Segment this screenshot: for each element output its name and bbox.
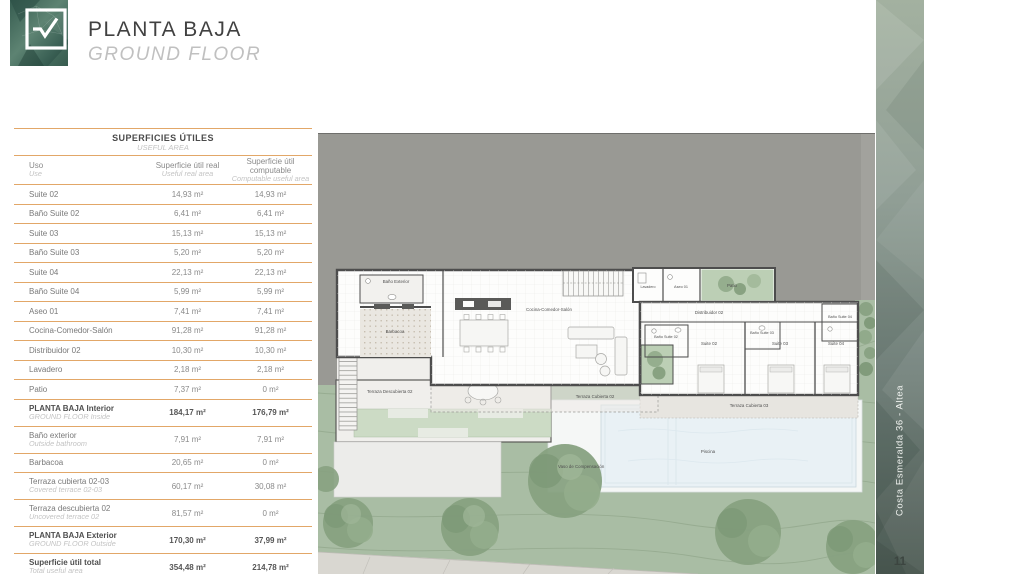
label-terraza-cubierta-02: Terraza Cubierta 02 — [576, 394, 615, 399]
label-suite-02: Suite 02 — [701, 341, 718, 346]
table-row-total: Superficie útil totalTotal useful area35… — [14, 554, 312, 574]
label-piscina: Piscina — [701, 449, 716, 454]
table-row: Cocina-Comedor-Salón91,28 m²91,28 m² — [14, 322, 312, 342]
table-row: Baño Suite 045,99 m²5,99 m² — [14, 283, 312, 303]
table-row-subtotal-exterior: PLANTA BAJA ExteriorGROUND FLOOR Outside… — [14, 527, 312, 554]
table-row: Aseo 017,41 m²7,41 m² — [14, 302, 312, 322]
label-terraza-cubierta-03: Terraza Cubierta 03 — [730, 403, 769, 408]
floor-plan: Baño Exterior Barbacoa Cocina-Comedor-Sa… — [318, 131, 875, 574]
table-row: Baño Suite 026,41 m²6,41 m² — [14, 205, 312, 225]
table-row: Lavadero2,18 m²2,18 m² — [14, 361, 312, 381]
page-number: 11 — [876, 556, 924, 568]
brand-logo-icon — [10, 0, 68, 66]
table-title-en: USEFUL AREA — [14, 143, 312, 152]
label-cocina: Cocina-Comedor-Salón — [526, 307, 572, 312]
table-title-block: SUPERFICIES ÚTILES USEFUL AREA — [14, 129, 312, 156]
table-row: Distribuidor 0210,30 m²10,30 m² — [14, 341, 312, 361]
label-bano-suite-03: Baño Suite 03 — [750, 331, 774, 335]
page-subtitle: GROUND FLOOR — [88, 44, 261, 66]
table-row: Terraza cubierta 02-03Covered terrace 02… — [14, 473, 312, 500]
label-distribuidor: Distribuidor 02 — [695, 310, 724, 315]
label-vaso: Vaso de Compensación — [558, 464, 605, 469]
label-bano-suite-04: Baño Suite 04 — [828, 315, 852, 319]
brand-logo — [10, 0, 68, 66]
table-row: Patio7,37 m²0 m² — [14, 380, 312, 400]
table-row: Baño Suite 035,20 m²5,20 m² — [14, 244, 312, 264]
col-computable: Superficie útil computable — [229, 157, 312, 175]
table-row: Suite 0422,13 m²22,13 m² — [14, 263, 312, 283]
house-bedroom-wing — [640, 302, 858, 395]
label-suite-03: Suite 03 — [772, 341, 789, 346]
label-aseo: Aseo 01 — [674, 285, 688, 289]
table-row: Terraza descubierta 02Uncovered terrace … — [14, 500, 312, 527]
table-title: SUPERFICIES ÚTILES — [14, 133, 312, 143]
table-header-row: UsoUse Superficie útil realUseful real a… — [14, 156, 312, 185]
table-row: Suite 0214,93 m²14,93 m² — [14, 185, 312, 205]
project-name-vertical: Costa Esmeralda 36 - Altea — [895, 385, 906, 516]
page-title: PLANTA BAJA — [88, 18, 242, 42]
label-lavadero: Lavadero — [641, 285, 656, 289]
table-row: Baño exteriorOutside bathroom7,91 m²7,91… — [14, 427, 312, 454]
table-row-subtotal-interior: PLANTA BAJA InteriorGROUND FLOOR Inside1… — [14, 400, 312, 427]
label-bano-suite-02: Baño Suite 02 — [654, 335, 678, 339]
areas-table: SUPERFICIES ÚTILES USEFUL AREA UsoUse Su… — [14, 128, 312, 574]
label-bano-exterior: Baño Exterior — [383, 279, 410, 284]
col-uso: Uso — [29, 161, 146, 170]
table-row: Suite 0315,13 m²15,13 m² — [14, 224, 312, 244]
label-patio: Patio — [727, 283, 738, 288]
table-row: Barbacoa20,65 m²0 m² — [14, 454, 312, 474]
brochure-page: PLANTA BAJA GROUND FLOOR SUPERFICIES ÚTI… — [0, 0, 1024, 574]
label-terraza-descubierta: Terraza Descubierta 02 — [367, 389, 413, 394]
label-suite-04: Suite 04 — [828, 341, 845, 346]
label-barbacoa: Barbacoa — [386, 329, 405, 334]
brand-sidebar: Costa Esmeralda 36 - Altea 11 — [876, 0, 924, 574]
